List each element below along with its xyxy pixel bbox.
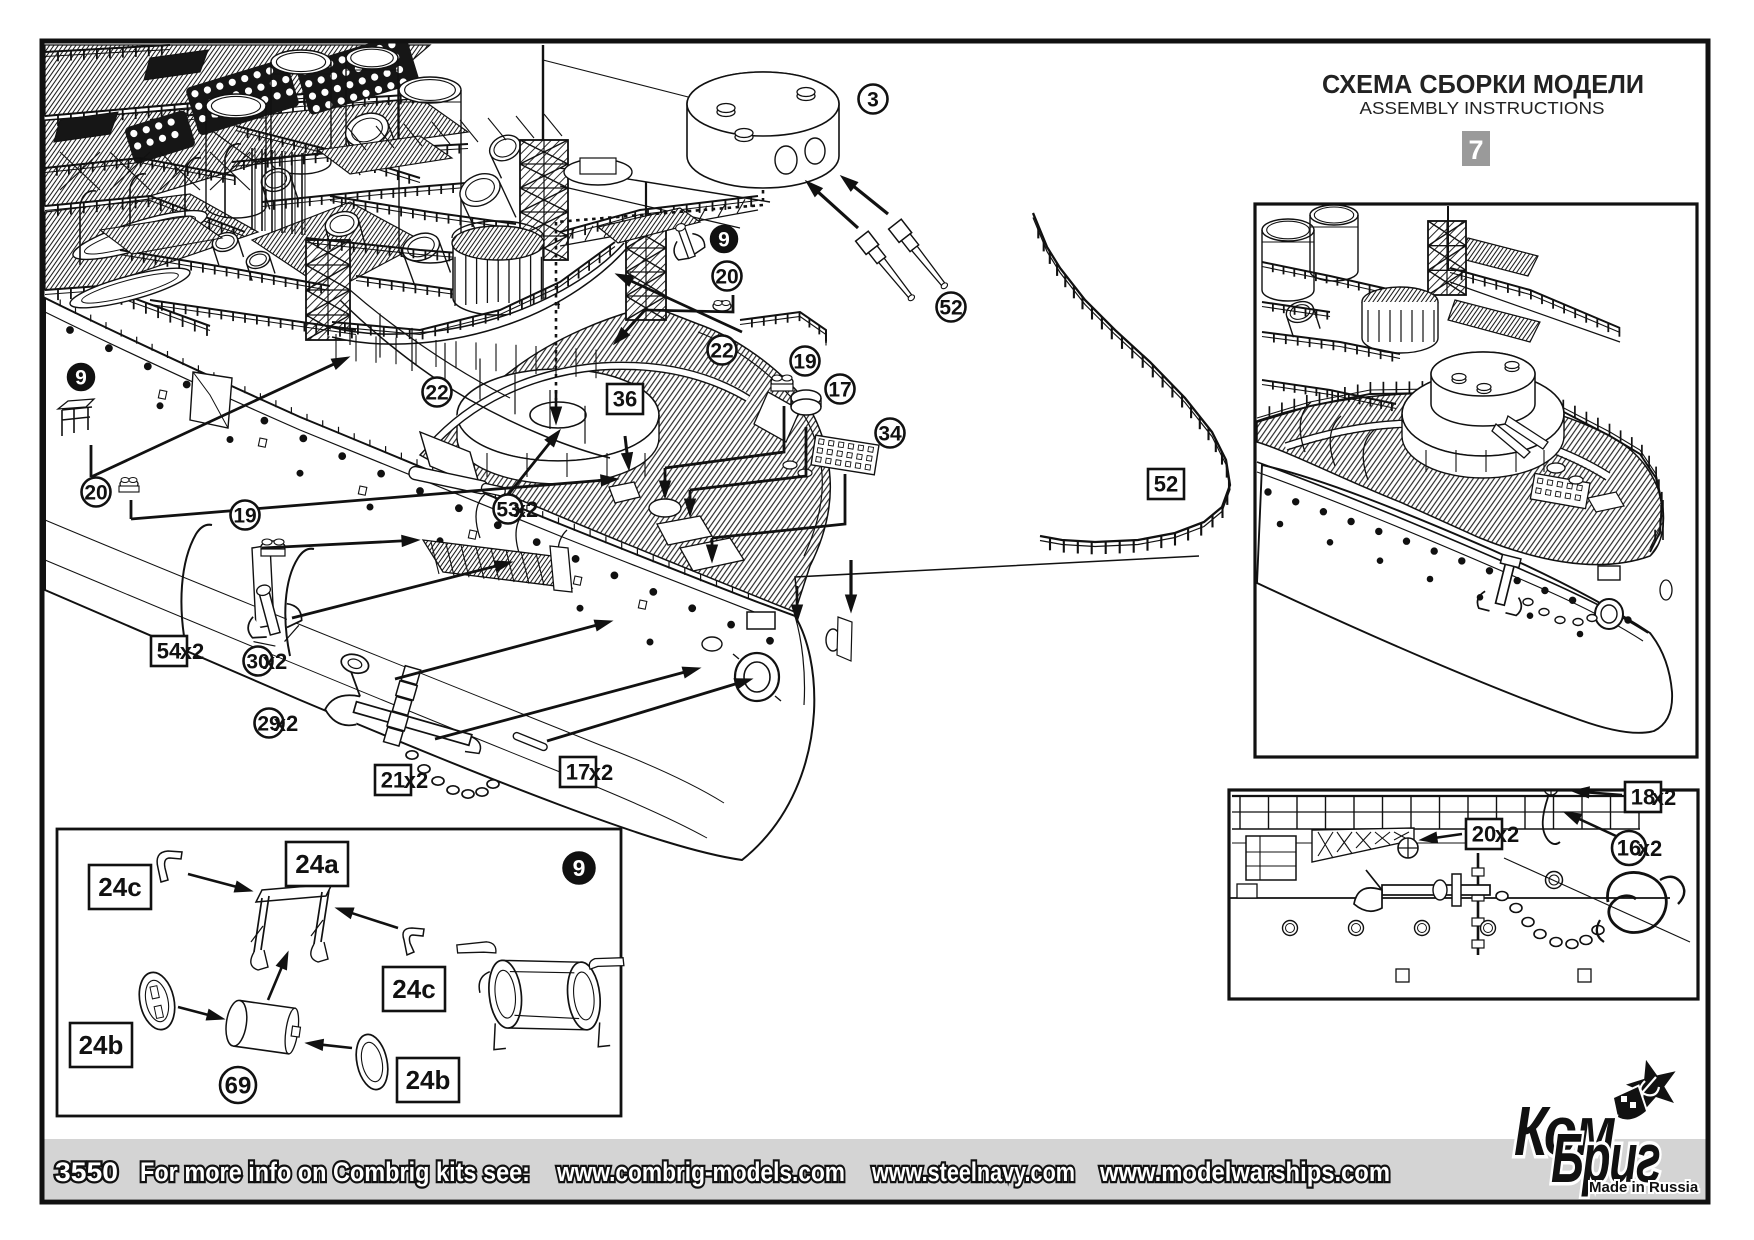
svg-text:17: 17 (566, 760, 590, 785)
svg-text:For more info on Combrig kits: For more info on Combrig kits see: (140, 1157, 530, 1187)
svg-text:19: 19 (233, 504, 256, 527)
svg-text:СХЕМА СБОРКИ МОДЕЛИ: СХЕМА СБОРКИ МОДЕЛИ (1322, 69, 1644, 99)
svg-text:21: 21 (381, 768, 405, 793)
svg-text:24b: 24b (406, 1065, 451, 1095)
svg-text:9: 9 (718, 228, 730, 251)
svg-text:24a: 24a (295, 849, 339, 879)
svg-text:Made in Russia: Made in Russia (1589, 1179, 1699, 1196)
svg-text:52: 52 (1154, 472, 1178, 497)
svg-text:x2: x2 (263, 649, 287, 674)
svg-text:www.steelnavy.com: www.steelnavy.com (871, 1157, 1075, 1187)
svg-text:x2: x2 (404, 768, 428, 793)
svg-text:3550: 3550 (55, 1157, 118, 1187)
svg-text:20: 20 (715, 265, 738, 288)
svg-text:20: 20 (84, 481, 107, 504)
svg-text:19: 19 (793, 350, 816, 373)
svg-text:www.combrig-models.com: www.combrig-models.com (556, 1157, 845, 1187)
svg-text:3: 3 (867, 88, 879, 111)
svg-text:24b: 24b (79, 1030, 124, 1060)
svg-text:36: 36 (613, 387, 637, 412)
svg-text:22: 22 (425, 381, 448, 404)
svg-text:54: 54 (157, 639, 182, 664)
svg-text:x2: x2 (1652, 785, 1676, 810)
svg-text:ASSEMBLY INSTRUCTIONS: ASSEMBLY INSTRUCTIONS (1360, 98, 1605, 118)
svg-text:7: 7 (1468, 135, 1483, 165)
svg-text:24c: 24c (98, 872, 141, 902)
svg-text:22: 22 (710, 339, 733, 362)
svg-text:24c: 24c (392, 974, 435, 1004)
svg-text:x2: x2 (589, 760, 613, 785)
svg-text:9: 9 (75, 366, 87, 389)
svg-text:34: 34 (878, 422, 902, 445)
svg-text:x2: x2 (1638, 836, 1662, 861)
svg-text:x2: x2 (180, 639, 204, 664)
svg-text:52: 52 (939, 296, 962, 319)
svg-text:17: 17 (828, 378, 851, 401)
svg-text:20: 20 (1472, 822, 1496, 847)
svg-text:x2: x2 (514, 497, 538, 522)
svg-text:x2: x2 (1495, 822, 1519, 847)
svg-text:www.modelwarships.com: www.modelwarships.com (1099, 1157, 1390, 1187)
svg-text:69: 69 (225, 1072, 252, 1099)
svg-text:9: 9 (573, 855, 586, 881)
svg-text:x2: x2 (274, 711, 298, 736)
